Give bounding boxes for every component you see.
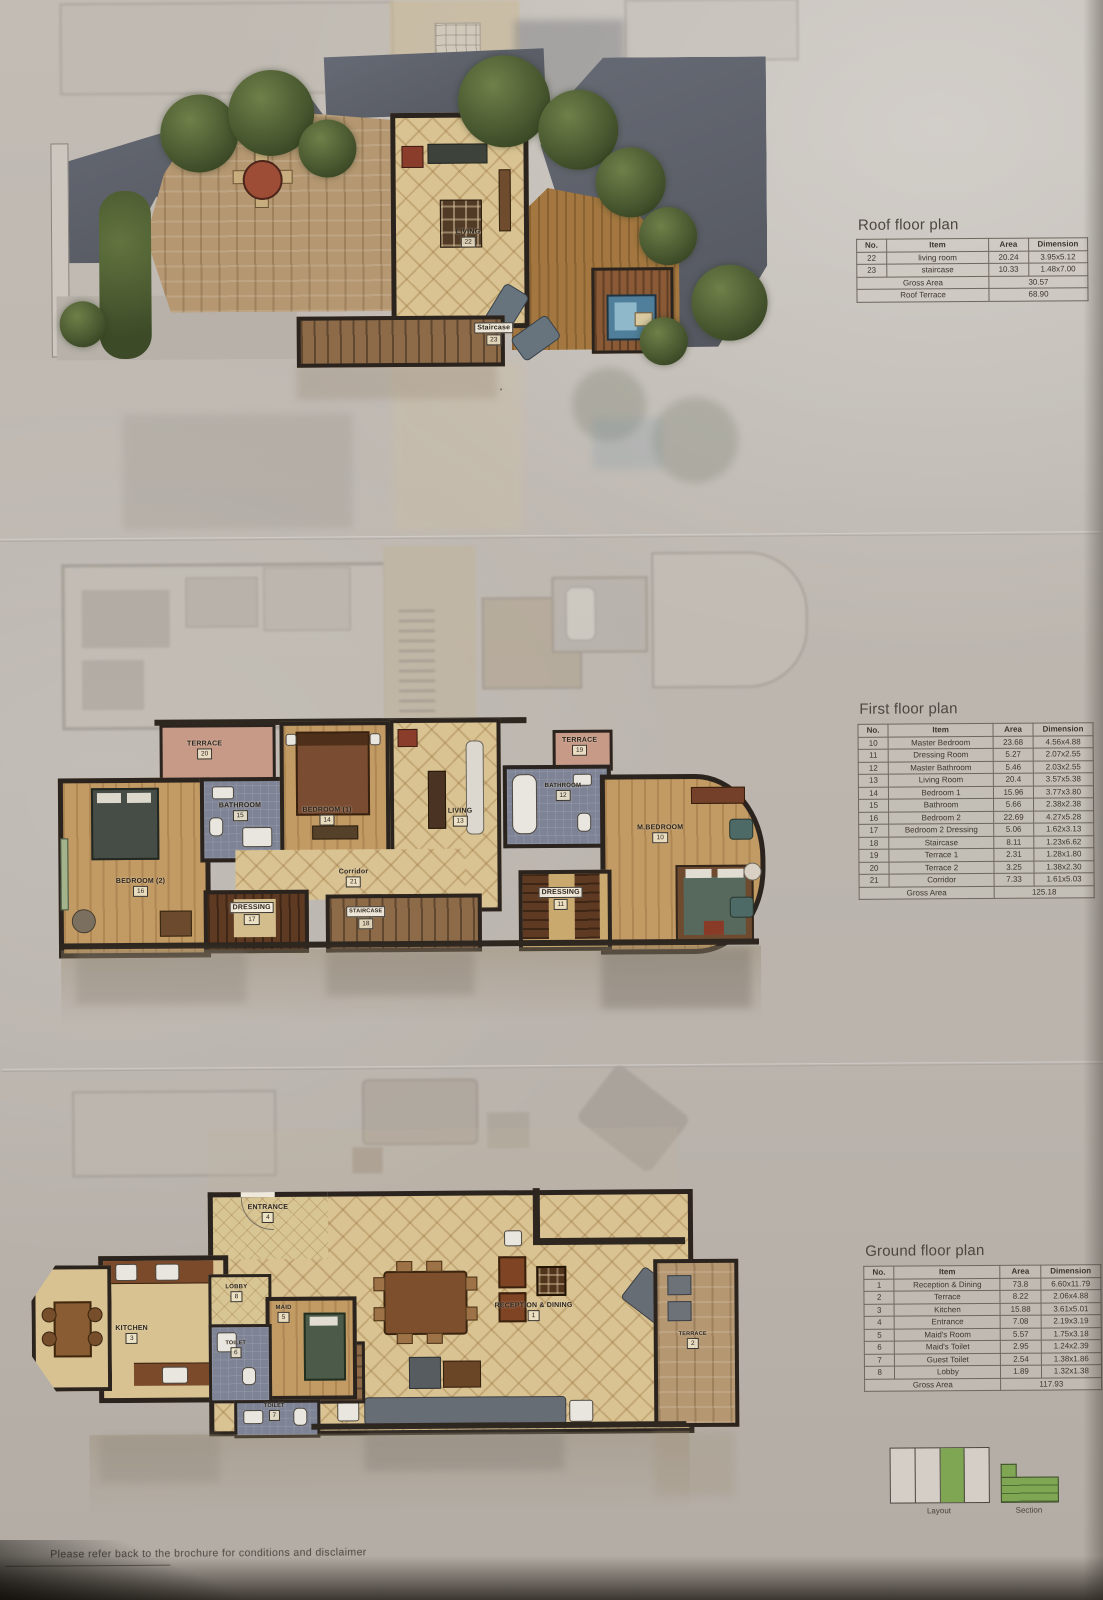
round-table [743,863,761,881]
room-label: Staircase [474,322,513,333]
ghost-bed [82,590,170,649]
chair [667,1275,691,1295]
table-cell: 18 [859,837,889,850]
toilet [577,813,591,832]
layout-unit [915,1448,940,1502]
ghost-room [185,577,257,628]
table-cell: Kitchen [894,1303,1000,1316]
room-label: LIVING [448,808,473,815]
room-number: 19 [572,745,587,756]
ghost-rooms [624,0,798,61]
room-label: LOBBY [225,1284,247,1290]
wall [533,1237,685,1245]
dining-table [383,1271,467,1336]
reflection [601,948,751,1009]
tree [160,94,239,173]
table-footer-cell: Gross Area [859,886,994,899]
room-label: TERRACE [187,740,222,747]
table-footer-cell: Roof Terrace [857,288,989,301]
table-cell: 8.22 [1000,1290,1040,1303]
reflection [99,1434,219,1483]
table-row: 17Bedroom 2 Dressing5.061.62x3.13 [859,823,1094,837]
table-row: 14Bedroom 115.963.77x3.80 [858,785,1093,799]
pillow [310,1317,338,1326]
table-cell: Living Room [888,773,993,786]
bathtub [512,774,537,834]
table-cell: 20 [859,862,889,875]
table-row: 5Maid's Room5.571.75x3.18 [864,1327,1101,1341]
data-table: No.ItemAreaDimension1Reception & Dining7… [863,1264,1102,1392]
table-header-cell: Item [886,238,989,251]
reflection [76,951,246,1004]
label-reception: RECEPTION & DINING1 [495,1302,573,1322]
table-header-cell: Area [1000,1265,1040,1278]
tree [458,55,551,148]
ghost-stairs [399,602,436,722]
table-header-cell: Area [993,723,1033,736]
cabinet [398,729,418,747]
table-footer-cell: 68.90 [989,288,1088,301]
table-cell: 15.96 [993,786,1033,799]
table-footer-row: Gross Area117.93 [865,1377,1102,1391]
table-cell: Bedroom 2 [889,811,994,824]
table-header-cell: Item [888,723,993,736]
table-header-cell: Area [989,238,1028,251]
pillow [685,869,711,878]
table-cell: 17 [859,824,889,837]
table-row: 22living room20.243.95x5.12 [857,250,1088,264]
ground-floor-table: No.ItemAreaDimension1Reception & Dining7… [863,1264,1102,1392]
section-key-diagram [1001,1476,1059,1502]
room-number: 2 [687,1338,699,1349]
table-row: 16Bedroom 222.694.27x5.28 [859,810,1094,824]
label-terrace-left: TERRACE20 [187,740,222,759]
sofa-long [364,1396,566,1425]
master-bathroom-room [503,765,612,849]
table-cell: 23.68 [993,736,1033,749]
label-dressing-right: DRESSING11 [539,887,583,910]
table-cell: staircase [886,263,989,276]
table-row: 11Dressing Room5.272.07x2.55 [858,748,1093,762]
room-label: STAIRCASE [346,906,385,917]
room-label: BATHROOM [219,802,261,809]
label-maid: MAID5 [275,1305,291,1323]
reflection [364,1432,564,1471]
entrance [208,1192,328,1260]
appliance [162,1367,188,1384]
table-cell: Bedroom 2 Dressing [889,823,994,836]
label-staircase: STAIRCASE18 [346,906,385,929]
table-cell: 20.4 [993,773,1033,786]
table-cell: 3.25 [994,861,1034,874]
table-row: 1Reception & Dining73.86.60x11.79 [864,1277,1101,1291]
reflection [297,362,497,399]
brochure-sheet: Staircase 23 LIVING 22 Roof floor plan N… [0,0,1103,1600]
headboard [298,733,368,745]
table-row: 6Maid's Toilet2.951.24x2.39 [864,1340,1101,1354]
tree [640,317,688,365]
ghost-bed [82,660,144,710]
sink [243,1410,263,1424]
table-row: 2Terrace8.222.06x4.88 [864,1290,1101,1304]
room-label: RECEPTION & DINING [495,1302,573,1310]
room-label: DRESSING [230,902,274,913]
table-cell: Entrance [894,1315,1000,1328]
room-label: Corridor [339,868,369,875]
table-row: 3Kitchen15.883.61x5.01 [864,1302,1101,1316]
hedge [99,191,152,359]
table-cell: 6 [864,1341,894,1354]
section-key-label: Section [1016,1506,1043,1515]
room-number: 8 [231,1291,243,1302]
first-floor-table: No.ItemAreaDimension10Master Bedroom23.6… [857,722,1094,900]
console [499,169,511,231]
table-cell: Reception & Dining [894,1278,1000,1291]
room-label: ENTRANCE [248,1204,289,1211]
table-cell: Maid's Room [895,1328,1001,1341]
table-cell: Guest Toilet [895,1353,1001,1366]
label-bedroom1: BEDROOM (1)14 [302,806,351,825]
chair [42,1307,57,1322]
label-lobby: LOBBY8 [225,1284,247,1302]
table-cell: 1.48x7.00 [1028,263,1088,276]
maid-toilet-room [209,1324,273,1403]
side-table [286,734,297,746]
room-label: DRESSING [539,887,583,898]
pillow [97,793,121,803]
table-cell: 8.11 [994,836,1034,849]
layout-unit-highlighted [940,1448,965,1502]
armchair [730,897,754,918]
label-maid-toilet: TOILET6 [225,1340,246,1358]
table-cell: Terrace 1 [889,848,994,861]
ground-floor-plan: ENTRANCE4 LOBBY8 MAID5 KITCHEN3 TOILET6 … [27,1068,791,1600]
room-label: LIVING [456,228,481,235]
room-number: 13 [452,816,467,827]
ground-floor-title: Ground floor plan [865,1242,984,1260]
table-header-cell: No. [864,1266,894,1279]
table-cell: 14 [858,787,888,800]
table-row: 19Terrace 12.311.28x1.80 [859,848,1094,862]
chair [42,1331,57,1346]
data-table: No.ItemAreaDimension10Master Bedroom23.6… [857,722,1094,900]
chair [373,1277,385,1291]
room-number: 15 [232,810,247,821]
chair [668,1301,692,1321]
dresser [312,825,358,839]
bed [91,788,160,860]
table-footer-row: Gross Area125.18 [859,885,1094,899]
table-header-cell: No. [858,724,888,737]
tree [595,147,665,217]
side-table [370,733,381,745]
table-cell: 1.89 [1001,1365,1041,1378]
stove [115,1264,137,1281]
room-number: 12 [555,790,570,801]
room-label: M.BEDROOM [637,824,683,831]
table-cell: 21 [859,874,889,887]
bedroom1-room [279,721,390,862]
chair [466,1307,478,1321]
table-cell: Master Bathroom [888,761,993,774]
table-cell: 4 [864,1316,894,1329]
armchair [72,909,96,933]
stool [498,1256,526,1288]
table-row: 21Corridor7.331.61x5.03 [859,873,1094,887]
table-cell: 15.88 [1000,1303,1040,1316]
toilet [293,1408,307,1426]
room-number: 10 [653,832,668,843]
roof-title: Roof floor plan [858,216,959,234]
data-table: No.ItemAreaDimension22living room20.243.… [856,237,1088,302]
room-label: BATHROOM [545,783,582,789]
grid-table [536,1266,566,1296]
chair [397,1333,413,1344]
room-number: 16 [133,886,148,897]
breakfast-table [53,1301,91,1357]
room-number: 17 [244,914,259,925]
room-number: 5 [278,1312,290,1323]
table-cell: 2.54 [1001,1353,1041,1366]
table-footer-cell: 30.57 [989,275,1088,288]
table-cell: Bathroom [889,798,994,811]
table-cell: 73.8 [1000,1278,1040,1291]
table-row: 18Staircase8.111.23x6.62 [859,835,1094,849]
chair [396,1261,412,1272]
label-roof-staircase: Staircase 23 [474,322,513,345]
ghost-bay-room [651,551,808,688]
table-cell: 1 [864,1279,894,1292]
room-number: 3 [126,1333,138,1344]
table-cell: Terrace [894,1290,1000,1303]
pillow [717,869,743,878]
table-cell: 12 [858,762,888,775]
photo-edge-right [1083,0,1103,1600]
table-row: 13Living Room20.43.57x5.38 [858,773,1093,787]
table-header-cell: No. [857,239,887,252]
table-row: 15Bathroom5.662.38x2.38 [859,798,1094,812]
dresser [691,787,745,804]
photo-edge-corner [0,1540,260,1600]
table-cell: 5.27 [993,748,1033,761]
reflection [326,950,474,996]
label-dressing-left: DRESSING17 [230,902,274,925]
toilet [242,1367,256,1385]
room-label: BEDROOM (2) [116,878,165,885]
room-number: 4 [262,1212,274,1223]
bedroom2-room [58,777,211,958]
label-master-bedroom: M.BEDROOM10 [637,824,683,843]
table-cell: 7 [864,1354,894,1367]
table-cell: 22.69 [994,811,1034,824]
layout-key-diagram [890,1447,990,1504]
room-number: 23 [486,334,501,345]
table-cell: 3 [864,1304,894,1317]
layout-unit [891,1448,916,1502]
table-footer-cell: Gross Area [857,276,989,289]
sink [212,786,234,799]
ghost-tiles [207,1127,677,1190]
room-number: 20 [197,748,212,759]
kitchen-bay [31,1265,112,1392]
table-row: 10Master Bedroom23.684.56x4.88 [858,735,1093,749]
layout-unit [965,1448,989,1502]
island [428,771,446,829]
room-label: KITCHEN [115,1325,148,1332]
chair [374,1307,386,1321]
first-floor-title: First floor plan [859,700,957,718]
reflection [654,1431,734,1497]
wall [533,1188,540,1244]
table-cell: 5.66 [994,798,1034,811]
table-cell: 20.24 [989,251,1028,264]
chair [427,1333,443,1344]
label-kitchen: KITCHEN3 [115,1325,148,1344]
table-cell: 7.08 [1001,1315,1041,1328]
room-number: 7 [268,1410,280,1421]
ghost-room [263,566,350,631]
roof-table: No.ItemAreaDimension22living room20.243.… [856,237,1088,302]
label-living: LIVING13 [448,808,473,827]
table-cell: 23 [857,264,887,277]
room-label: TERRACE [679,1331,707,1337]
side-table [504,1230,522,1246]
table-cell: living room [886,251,989,264]
master-bedroom-room [600,774,766,955]
window [60,838,69,910]
table-cell: 19 [859,849,889,862]
chair [88,1307,103,1322]
section-key-step [1001,1464,1017,1478]
side-table [569,1400,593,1422]
table-cell: 8 [864,1366,894,1379]
label-entrance: ENTRANCE4 [248,1204,289,1223]
first-floor-plan: TERRACE20 TERRACE19 BATHROOM15 BEDROOM (… [53,543,772,1078]
table-cell: 5.06 [994,823,1034,836]
table-footer-row: Roof Terrace68.90 [857,288,1088,302]
room-label: BEDROOM (1) [302,806,351,813]
label-bathroom-right: BATHROOM12 [545,783,582,801]
throw [704,921,724,935]
room-number: 22 [460,237,475,248]
sink [155,1264,179,1281]
bush [60,301,106,347]
table-row: 12Master Bathroom5.462.03x2.55 [858,760,1093,774]
table-cell: 10.33 [989,263,1028,276]
table-row: 4Entrance7.082.19x3.19 [864,1315,1101,1329]
table-cell: Dressing Room [888,748,993,761]
shower [242,827,272,847]
table-cell: 5.57 [1001,1328,1041,1341]
reflection-roof [122,413,353,530]
label-terrace-right: TERRACE19 [562,737,597,756]
table-cell: 5 [864,1329,894,1342]
table-cell: 16 [859,812,889,825]
table-header-cell: Dimension [1028,238,1088,251]
table-row: 8Lobby1.891.32x1.38 [864,1365,1101,1379]
table-row: 7Guest Toilet2.541.38x1.86 [864,1352,1101,1366]
table-cell: 2.31 [994,848,1034,861]
label-guest-toilet: TOILET7 [264,1403,285,1421]
ghost-tub [566,587,596,641]
room-number: 11 [553,899,568,910]
chair [465,1277,477,1291]
sofa [427,143,487,163]
table-cell: Corridor [889,873,994,886]
coffee-table [409,1357,441,1389]
table-cell: Staircase [889,836,994,849]
label-bedroom2: BEDROOM (2)16 [116,878,165,897]
reflection-pool [592,417,662,469]
table-cell: Lobby [895,1365,1001,1378]
table-cell: 11 [858,749,888,762]
pool-water [615,302,637,330]
room-number: 1 [528,1310,540,1321]
table-cell: 10 [858,737,888,750]
table-cell: 3.95x5.12 [1028,250,1088,263]
tree [298,119,356,177]
table-row: 23staircase10.331.48x7.00 [857,263,1088,277]
bed [304,1312,346,1380]
room-label: MAID [275,1305,291,1311]
table-cell: Maid's Toilet [895,1340,1001,1353]
coffee-table [443,1361,481,1388]
label-corridor: Corridor21 [339,868,369,887]
photo-of-brochure-page: Staircase 23 LIVING 22 Roof floor plan N… [0,0,1103,1600]
reflection-tree [652,397,739,484]
patio-round-table [243,160,283,200]
roof-floor-plan: Staircase 23 LIVING 22 [49,0,773,548]
chair [426,1261,442,1272]
cabinet [401,146,423,168]
table-cell: 2 [864,1291,894,1304]
room-number: 6 [230,1347,242,1358]
table-footer-cell: Gross Area [865,1378,1002,1391]
cabinet [160,911,192,937]
table-header-cell: Item [894,1265,1000,1278]
room-label: TERRACE [562,737,597,744]
room-label: TOILET [225,1340,246,1346]
armchair [729,819,753,840]
table-cell: Master Bedroom [888,736,993,749]
label-terrace: TERRACE2 [679,1331,707,1349]
room-number: 18 [358,918,373,929]
layout-key-label: Layout [927,1506,951,1515]
room-number: 14 [319,815,334,826]
ghost-plan-layer [53,543,769,726]
chair [88,1331,103,1346]
label-bathroom-left: BATHROOM15 [219,802,261,821]
table-row: 20Terrace 23.251.38x2.30 [859,860,1094,874]
bed [296,731,371,816]
label-roof-living: LIVING 22 [456,228,481,247]
pillow [127,793,151,803]
table-cell: Terrace 2 [889,861,994,874]
tree [691,264,768,341]
ghost-plan-layer [27,1068,788,1193]
table-footer-cell: 125.18 [994,885,1094,898]
table-cell: 15 [859,799,889,812]
room-label: TOILET [264,1403,285,1409]
table-cell: 7.33 [994,873,1034,886]
side-table [337,1401,359,1421]
table-cell: 5.46 [993,761,1033,774]
tree [639,207,697,265]
table-cell: 22 [857,252,887,265]
table-cell: 13 [858,774,888,787]
room-number: 21 [346,876,361,887]
table-cell: Bedroom 1 [889,786,994,799]
